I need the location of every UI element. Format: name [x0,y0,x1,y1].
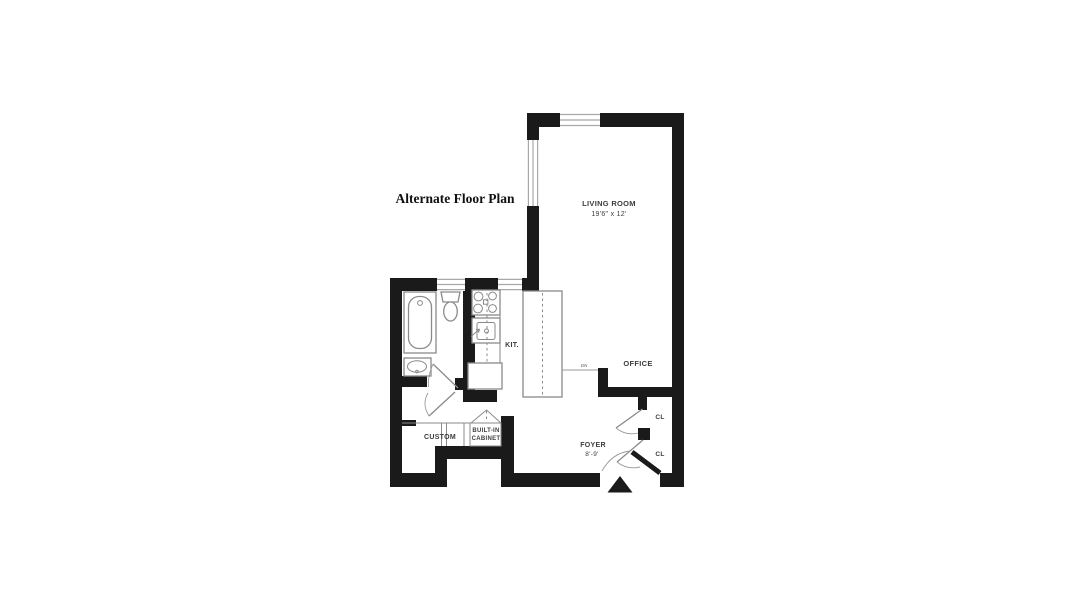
dressing-area-door [425,392,455,416]
office-label: OFFICE [623,359,652,368]
window [437,278,465,291]
toilet [441,292,460,321]
window [560,113,600,127]
wall-segment [502,473,600,487]
wall-segment [638,397,647,410]
bathtub [404,292,436,353]
wall-segment [527,113,539,140]
plan-title: Alternate Floor Plan [396,191,515,206]
foyer-label: FOYER [580,442,606,449]
entry-door [602,451,660,473]
living-room-label: LIVING ROOM [582,199,636,208]
wall-segment [600,113,684,127]
wall-segment [465,278,498,291]
bathroom-door [428,364,458,388]
built-in-cabinet-label-line1: BUILT-IN [472,428,499,434]
custom-closet-label: CUSTOM [424,434,456,441]
refrigerator [468,363,502,389]
wall-segment [463,390,497,402]
wall-segment [638,428,650,440]
living-room-dimensions: 19'6" x 12' [591,211,626,218]
wall-segment [598,387,677,397]
wall-segment [390,376,427,387]
bathroom-sink [404,358,431,376]
wall-segment [522,278,539,291]
dn-annotation: DN [581,363,588,368]
window [498,278,522,291]
floor-plan-page: Alternate Floor Plan LIVING ROOM 19'6" x… [0,0,1080,608]
floor-plan: Alternate Floor Plan LIVING ROOM 19'6" x… [0,0,1080,608]
kitchen-label: KIT. [505,342,519,349]
built-in-cabinet-label-line2: CABINET [472,436,501,442]
stove [472,290,500,315]
closet-lower-label: CL [655,451,664,458]
kitchen-island [523,291,562,397]
kitchen-sink [471,318,500,343]
entry-arrow [608,476,633,493]
closet-upper-label: CL [655,414,664,421]
closet-door-lower [617,440,643,468]
wall-segment [672,113,684,487]
foyer-dimensions: 8'-9' [585,451,598,458]
wall-segment [660,473,684,487]
window [527,140,539,206]
